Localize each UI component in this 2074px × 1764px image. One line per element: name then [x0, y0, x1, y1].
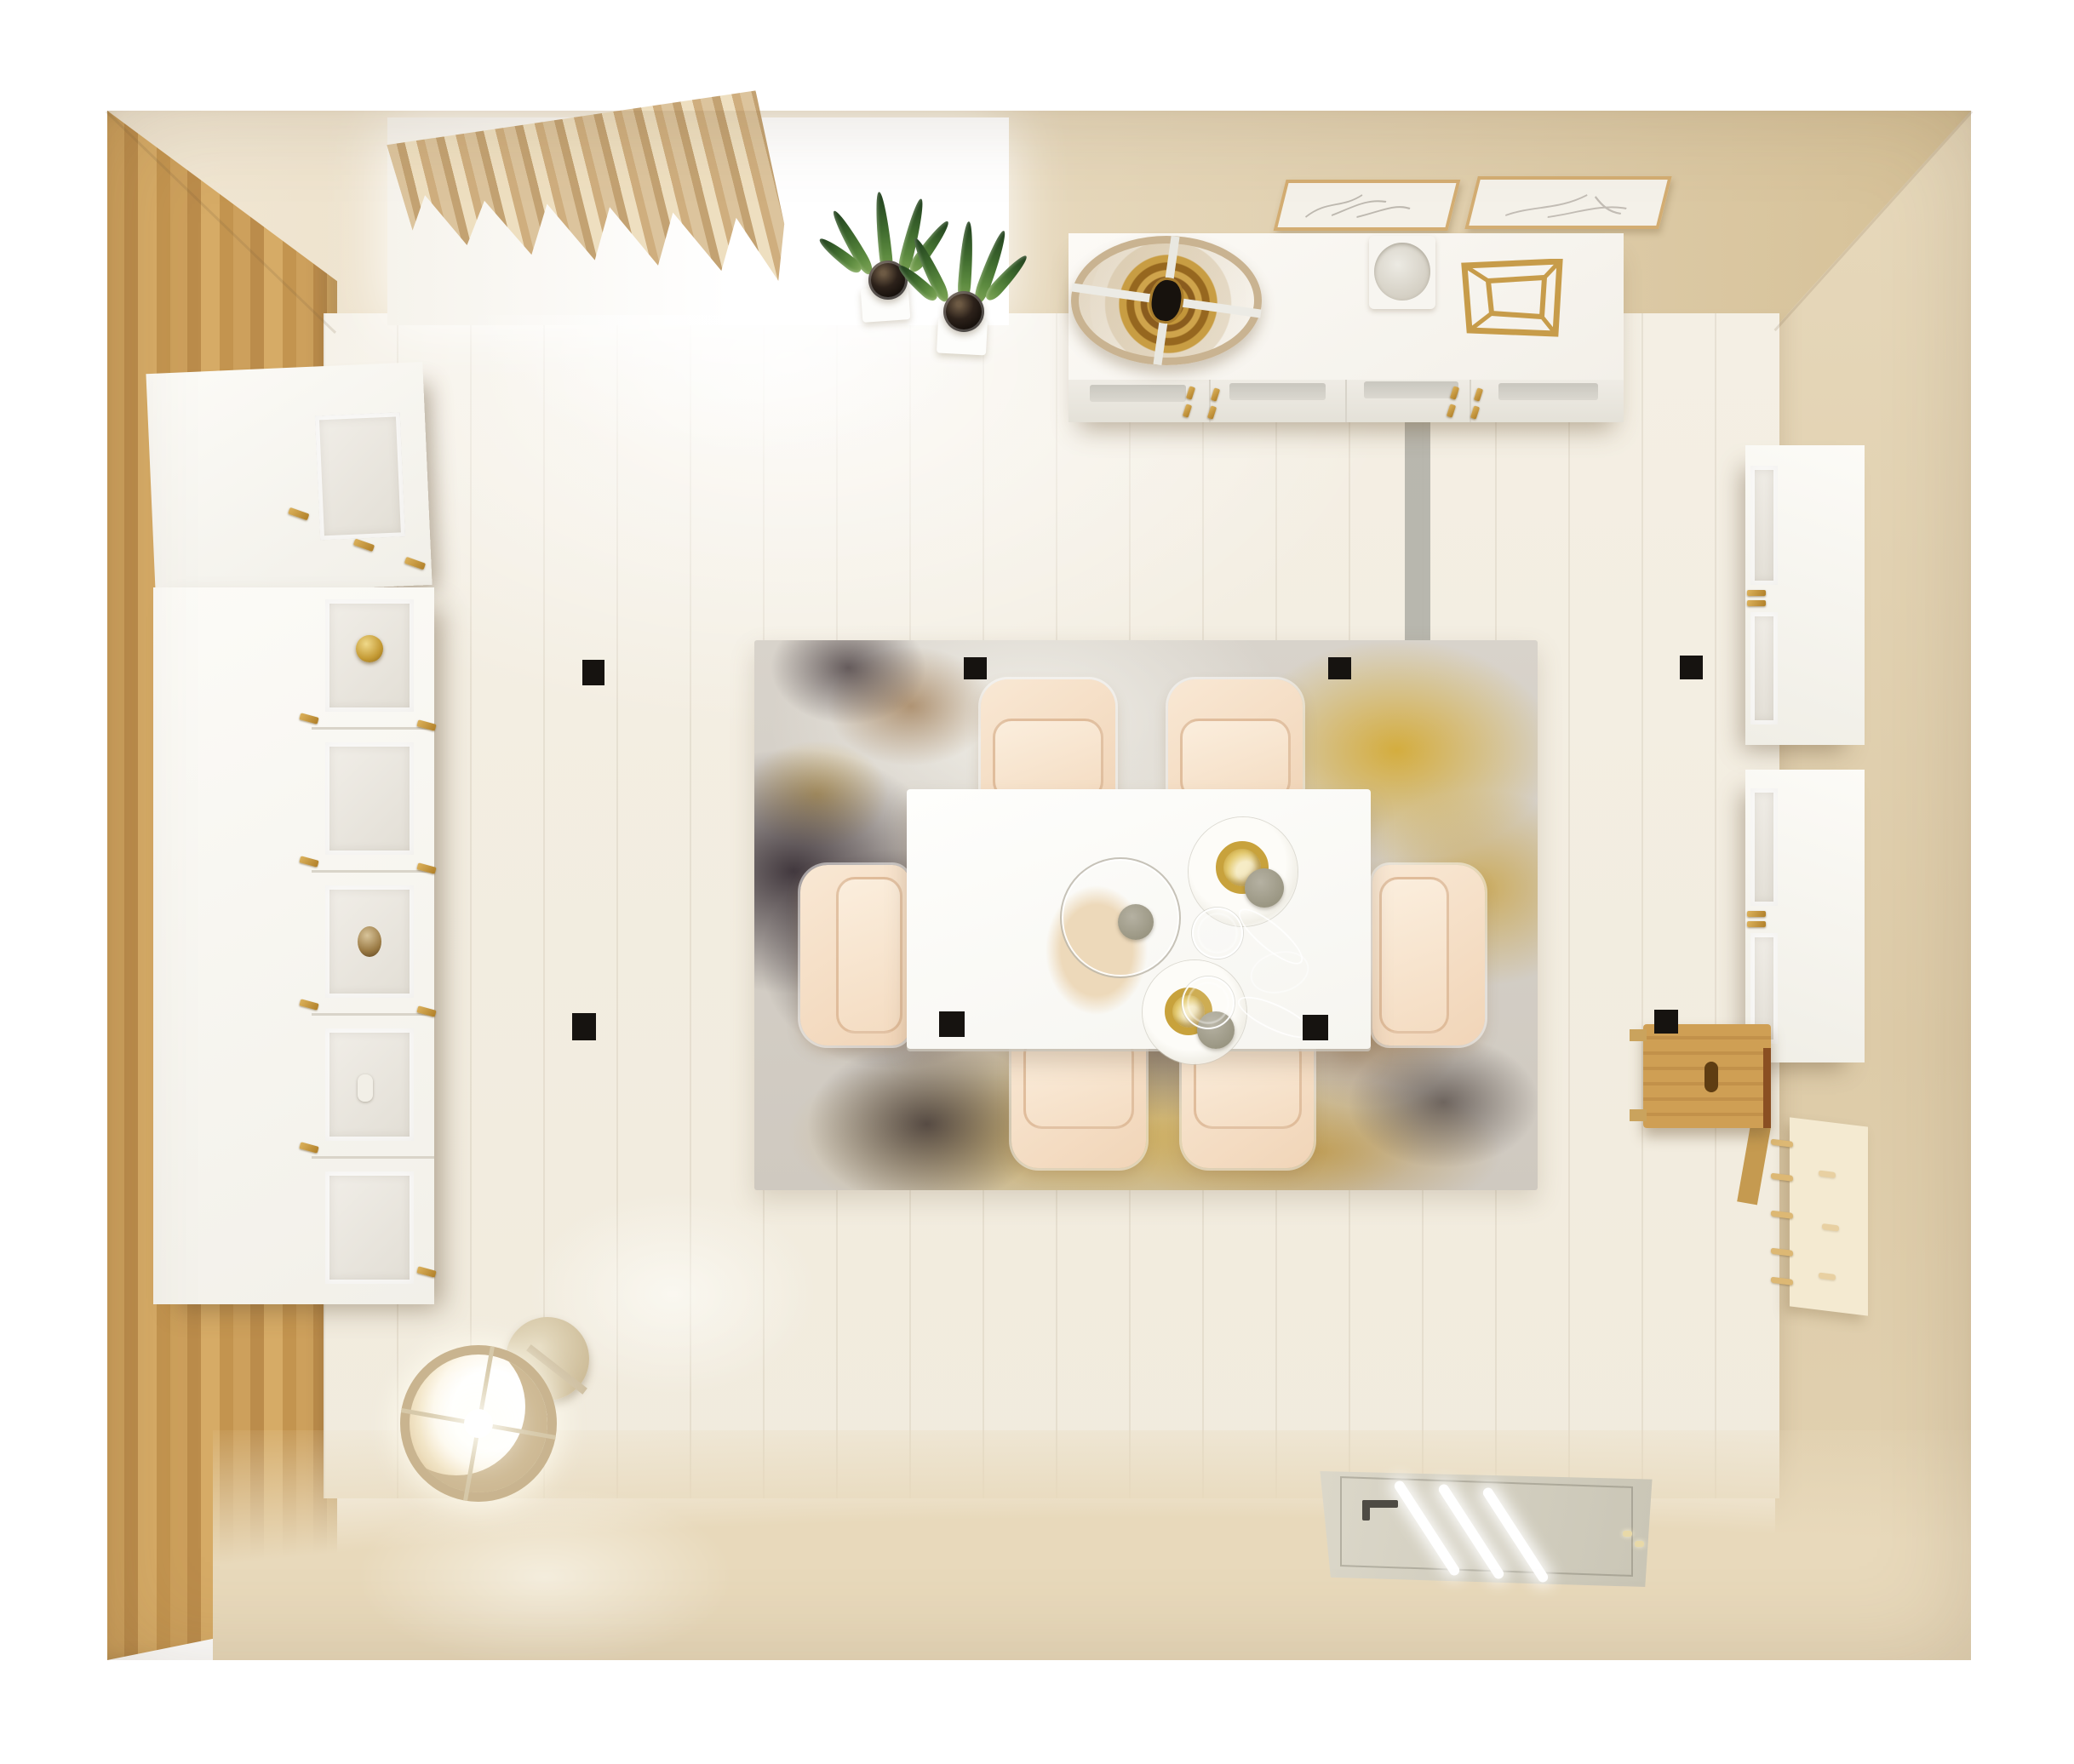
wood-shelf-stool — [1643, 1024, 1771, 1128]
floor-channel-strip — [1405, 419, 1430, 650]
cabinet-handle — [416, 1266, 436, 1277]
right-wall-cabinet — [1745, 445, 1865, 745]
cabinet-glass-door — [315, 412, 405, 540]
cabinet-handle — [1747, 921, 1766, 927]
cabinet-handle — [1747, 600, 1766, 606]
cabinet-glass-door — [325, 1171, 414, 1284]
display-item-gold — [356, 635, 383, 662]
left-cabinet-stack — [153, 587, 434, 1304]
wine-glass — [1192, 908, 1243, 959]
door-handle — [1362, 1500, 1370, 1521]
ceiling-spotlight — [1303, 1015, 1328, 1040]
sideboard-lamp — [1071, 236, 1262, 365]
dining-chair — [800, 865, 909, 1045]
cabinet-handle — [288, 507, 309, 521]
lamp-finial — [1146, 275, 1186, 325]
cabinet-handle — [1747, 911, 1766, 917]
wood-peg — [1819, 1273, 1836, 1280]
cabinet-handle — [299, 999, 318, 1010]
ceiling-spotlight — [1654, 1010, 1678, 1034]
cabinet-door-gap — [312, 870, 434, 873]
bowl-interior — [1374, 243, 1430, 301]
cabinet-handle — [353, 538, 375, 552]
cabinet-door-gap — [312, 1156, 434, 1159]
peg-rail — [1790, 1117, 1868, 1315]
cabinet-glass-door — [1750, 466, 1778, 585]
framed-print — [1464, 176, 1671, 229]
shelf-slot — [1704, 1062, 1718, 1092]
lamp-bulb — [464, 1409, 493, 1438]
botanical-sketch — [1278, 183, 1457, 227]
cabinet-door-gap — [312, 1013, 434, 1016]
cabinet-handle — [299, 713, 318, 724]
room-render — [0, 0, 2074, 1764]
cabinet-handle — [299, 856, 318, 867]
display-item-white — [358, 1074, 373, 1102]
decor-gold-cube — [1459, 259, 1565, 337]
framed-print — [1274, 180, 1461, 231]
cabinet-glass-door — [1750, 612, 1778, 724]
sideboard-door-recess — [1364, 381, 1458, 398]
sideboard-door-recess — [1498, 383, 1598, 400]
cabinet-door-gap — [312, 727, 434, 730]
glass-slat-door — [1309, 1458, 1663, 1594]
gold-cube-wireframe — [1459, 259, 1565, 337]
ceiling-spotlight — [582, 660, 604, 685]
ceiling-spotlight — [572, 1013, 596, 1040]
sideboard-door-gap — [1345, 380, 1347, 422]
botanical-sketch — [1469, 180, 1667, 226]
sideboard-door-recess — [1229, 383, 1326, 400]
display-item-bronze — [358, 926, 381, 957]
ceiling-spotlight — [1328, 657, 1351, 679]
cabinet-handle — [299, 1142, 318, 1153]
shelf-bracket — [1630, 1109, 1647, 1121]
wine-glass — [1182, 976, 1235, 1029]
napkin-disc — [1245, 868, 1284, 908]
door-hinge-glint — [1635, 1541, 1644, 1547]
dining-chair — [1372, 865, 1485, 1045]
floor-lamp-shade — [400, 1345, 557, 1502]
dining-chair — [1011, 1028, 1146, 1168]
cabinet-handle — [404, 557, 426, 570]
ceiling-spotlight — [939, 1011, 965, 1037]
plant-pot — [943, 291, 984, 332]
napkin-disc — [1118, 904, 1154, 940]
wood-peg — [1822, 1223, 1839, 1231]
right-wall-cabinet — [1745, 770, 1865, 1062]
potted-plant — [921, 220, 1015, 339]
lamp-light-pool — [358, 1486, 732, 1669]
dining-chair — [981, 679, 1115, 807]
left-wall-cabinet — [146, 362, 432, 597]
cabinet-glass-door — [1750, 788, 1778, 906]
cabinet-glass-door — [325, 742, 414, 855]
ceiling-spotlight — [964, 657, 987, 679]
wood-peg — [1819, 1171, 1836, 1178]
shelf-bracket — [1630, 1029, 1647, 1041]
door-hinge-glint — [1623, 1531, 1632, 1537]
sideboard-door-recess — [1090, 385, 1186, 402]
dining-chair — [1168, 679, 1303, 807]
ceiling-spotlight — [1680, 656, 1703, 679]
window-light-pool — [393, 315, 1057, 579]
shelf-edge — [1763, 1048, 1771, 1128]
cabinet-handle — [1747, 590, 1766, 596]
decor-bowl — [1369, 236, 1435, 309]
